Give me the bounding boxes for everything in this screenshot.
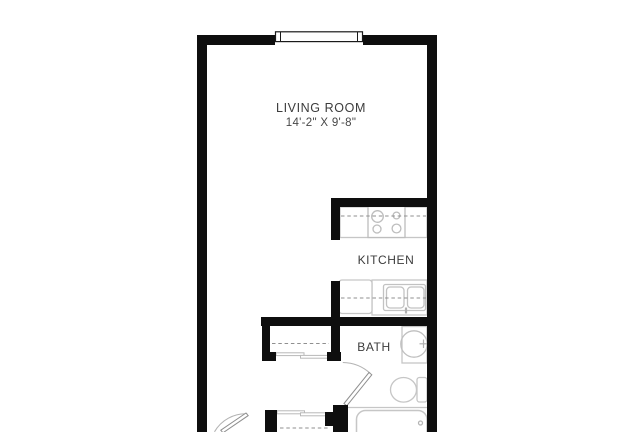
kitchen-sink-icon	[384, 285, 426, 314]
floor-plan-graphic	[0, 0, 640, 432]
hall-closet	[272, 344, 329, 359]
wall-left	[197, 35, 207, 432]
stove-icon	[368, 207, 405, 238]
toilet-bowl	[391, 378, 417, 403]
room-label-kitchen: KITCHEN	[358, 253, 415, 267]
door-swing-arc	[343, 363, 370, 374]
toilet-icon	[391, 378, 428, 403]
entry-door	[215, 413, 249, 432]
closet-sliding-door	[276, 353, 304, 356]
wall-bathdoor-hinge	[333, 405, 348, 432]
wall-closet-right-jamb	[327, 352, 341, 361]
room-dimensions-living-room: 14'-2" X 9'-8"	[286, 117, 356, 129]
sink-basin	[387, 287, 405, 308]
wall-kitchen-north	[331, 198, 427, 207]
wall-south	[261, 317, 427, 326]
vanity-sink-icon	[401, 327, 428, 364]
bath-door	[343, 363, 372, 406]
refrigerator-icon	[339, 280, 372, 314]
door-leaf	[344, 373, 372, 406]
room-label-bath: BATH	[357, 340, 391, 354]
bathtub-icon	[357, 411, 428, 432]
wall-kitchen-stub-upper	[331, 198, 340, 240]
window-icon	[276, 32, 363, 42]
floor-plan: LIVING ROOM 14'-2" X 9'-8" KITCHEN BATH	[0, 0, 640, 432]
wall-entrycloset-jamb	[265, 410, 277, 432]
entry-closet	[277, 411, 332, 428]
wall-top-left	[197, 35, 275, 45]
wall-bathdoor-hinge-notch	[325, 412, 333, 426]
wall-closet-left-jamb	[262, 352, 276, 361]
wall-right	[427, 35, 437, 432]
wall-top-right	[363, 35, 437, 45]
room-label-living-room: LIVING ROOM	[276, 101, 366, 115]
closet-sliding-door	[301, 355, 329, 358]
toilet-tank	[417, 378, 427, 403]
sink-basin	[408, 287, 425, 308]
